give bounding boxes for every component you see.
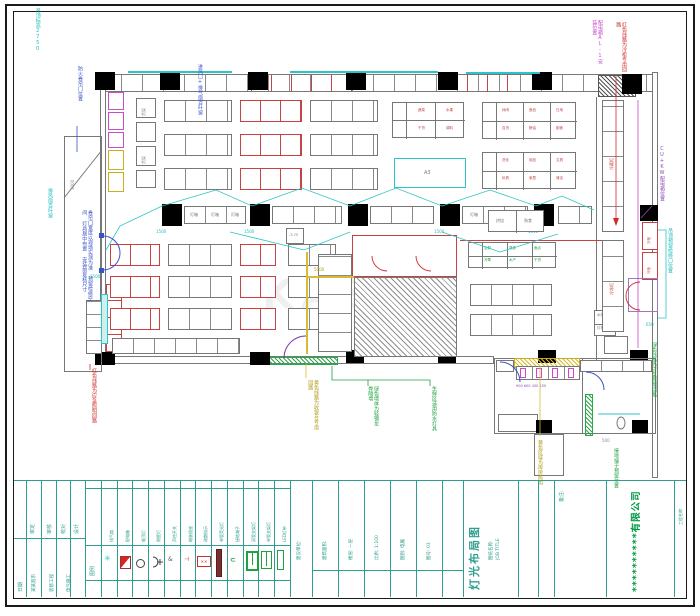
zone-label: 洗化	[502, 158, 509, 163]
legend-name: 吸顶灯	[141, 530, 147, 542]
single-bracket-lamp-symbol-icon	[261, 551, 272, 569]
rack-label-box	[136, 170, 156, 188]
cold-cabinet-label: 冷柜	[647, 237, 652, 244]
rack-label: 货架	[141, 156, 147, 164]
shelf-row	[168, 276, 232, 298]
column	[95, 72, 115, 90]
yellow-wall-line	[306, 276, 354, 278]
lightbox-strip	[558, 206, 592, 224]
shelf-row	[310, 134, 378, 156]
legend-name: 单管支架灯	[266, 522, 272, 542]
tb-field: 图别: 电施	[400, 539, 406, 560]
tb-field: 图号: 03	[426, 542, 432, 560]
green-hatched-wall-vertical	[585, 394, 593, 436]
column	[438, 72, 458, 90]
cold-cabinet-label: 冷柜	[647, 267, 652, 274]
titleblock-line	[180, 480, 181, 597]
titleblock-line	[312, 570, 463, 571]
titleblock-line	[258, 480, 259, 597]
annex-shelf-stack	[86, 300, 102, 354]
dim-1500: 1500	[156, 229, 166, 234]
titleblock-line	[148, 480, 149, 597]
hatched-void-area	[354, 277, 457, 357]
zone-label: 生鲜	[484, 246, 491, 251]
tb-check-label: 审核	[46, 524, 53, 534]
legend-name: 配电箱	[125, 530, 131, 542]
titleblock-line	[85, 545, 290, 546]
red-wall-line	[460, 240, 620, 241]
dim-1500: 1500	[244, 229, 254, 234]
tb-project-label: 工程名称:	[678, 508, 684, 525]
titleblock-line	[132, 480, 133, 597]
shelf-row	[168, 244, 232, 266]
titleblock-border	[14, 480, 686, 481]
ground-symbol-icon: ⊂	[230, 556, 236, 564]
lightbox-strip	[272, 206, 342, 224]
lightbox-strip	[370, 206, 434, 224]
shelf-row-red	[110, 308, 160, 330]
column	[346, 72, 366, 90]
annotation-site-notes: 卷帘门宽度以现场实测为准 预留检修空间 灯具居中布置 安装前复核尺寸	[54, 210, 92, 304]
legend-name: 声控开关	[172, 526, 178, 542]
annotation-partition-wall: 绿色墙体为轻钢龙骨隔墙	[358, 386, 378, 430]
legend-name: LED灯带	[282, 526, 288, 542]
zone-label: 面点	[534, 246, 541, 251]
zone-label: 食品	[529, 108, 536, 113]
cold-cabinet	[642, 252, 658, 280]
dim-500: 500	[602, 438, 610, 443]
shelf-row-red	[240, 134, 302, 156]
column	[640, 205, 658, 221]
titleblock-line	[243, 480, 244, 597]
zone-label: 日用	[556, 108, 563, 113]
drawing-title-label: 图纸名称:	[488, 540, 494, 560]
magenta-fixture	[536, 368, 542, 378]
shelf-row-red	[240, 308, 276, 330]
ceiling-lamp-symbol-icon	[136, 559, 145, 568]
shelf-row-red	[110, 276, 160, 298]
column	[536, 420, 552, 433]
cyan-wall-strip	[101, 294, 108, 344]
annotation-cashier-circuit: 黄色线路为收银台专用回路	[292, 380, 318, 432]
rack-label: 货架	[141, 108, 147, 116]
led-strip-symbol-icon	[277, 550, 284, 570]
exit-sign-symbol-icon: ✕✕	[197, 556, 211, 567]
magenta-fixture-box	[108, 132, 124, 148]
dim-650: 650	[646, 322, 654, 327]
annotation-exhaust-louver: 排风扇百叶窗	[38, 188, 52, 246]
column	[250, 352, 270, 365]
shelf-row-red	[110, 244, 160, 266]
titleblock-line	[606, 480, 607, 597]
drawing-title: 灯光布局图	[466, 525, 482, 590]
dim-1500: 1500	[434, 229, 444, 234]
distribution-box	[348, 204, 368, 226]
dim-3000: 3000	[70, 180, 75, 190]
column	[160, 72, 180, 90]
legend-name: 侧壁灯	[156, 530, 162, 542]
tb-proof-label: 校对	[60, 524, 67, 534]
distribution-box	[440, 204, 460, 226]
zone-label: 调料	[446, 126, 453, 131]
dim-row: 900 600 450 150	[516, 384, 546, 388]
titleblock-line	[364, 480, 365, 597]
zone-label: 干货	[534, 258, 541, 263]
tb-project-text: 装修工程	[49, 574, 55, 592]
titleblock-line	[463, 480, 464, 597]
shelf-row	[310, 100, 378, 122]
zone-label: 清洁	[556, 176, 563, 181]
company-name: **********有限公司	[628, 490, 642, 592]
titleblock-line	[274, 480, 275, 597]
column	[248, 72, 268, 90]
red-room-band	[352, 235, 457, 277]
switch-symbol-icon: &	[168, 556, 173, 563]
distribution-box-symbol-icon	[120, 556, 131, 569]
zone-label: 熟食	[509, 246, 516, 251]
titleblock-line	[338, 480, 339, 597]
titleblock-line	[85, 580, 290, 581]
legend-name: 接地端子	[235, 526, 241, 542]
titleblock-line	[518, 480, 519, 597]
column	[532, 72, 552, 90]
room-label: 熟食	[524, 218, 532, 224]
annex-room-box	[498, 414, 538, 432]
shelf-row	[168, 308, 232, 330]
cold-counter-label: 冷冻柜	[609, 283, 615, 295]
zone-label: 水果	[446, 108, 453, 113]
lightbox-label: 灯箱	[470, 212, 478, 218]
tb-field: 建筑面积:	[322, 540, 328, 560]
titleblock-line	[211, 480, 212, 597]
shelf-row	[310, 168, 378, 190]
lightbox-label: 灯箱	[211, 212, 219, 218]
fan-symbol-icon: ✳	[104, 554, 111, 563]
zone-label: 粮油	[529, 126, 536, 131]
double-bracket-lamp-symbol-icon	[246, 551, 259, 571]
magenta-fixture-box	[108, 112, 124, 130]
ac-zone-label: A3	[424, 170, 431, 176]
annotation-waterproof-lamp: 生鲜区选用防水灯具	[422, 386, 436, 432]
zone-label: 文具	[556, 158, 563, 163]
tb-design-label: 设计	[73, 524, 80, 534]
annotation-fire-shutter: 防火卷帘门位置	[72, 66, 82, 124]
titleblock-line	[442, 480, 443, 597]
corridor-box	[604, 336, 628, 354]
yellow-wall-line	[306, 252, 308, 354]
yellow-fixture-box	[108, 172, 124, 192]
annotation-ceiling-height: 吊顶标高2750	[34, 8, 40, 56]
titleblock-line	[290, 480, 291, 597]
legend-title: 图例	[89, 566, 96, 576]
magenta-fixture	[568, 368, 574, 378]
zone-label: 水产	[509, 258, 516, 263]
shelf-row-red	[240, 168, 302, 190]
green-hatched-wall-segment	[258, 357, 338, 365]
shelf-row-red	[240, 100, 302, 122]
drawing-sheet: KASO 3000 货架 货架	[0, 0, 700, 616]
annotation-cu-kw-box: CU+KW配电箱位置	[648, 146, 664, 204]
zone-label: 玩具	[502, 176, 509, 181]
tb-field: 楼层: 一层	[348, 539, 354, 560]
annex-top-cell	[496, 360, 514, 372]
magenta-fixture-box	[108, 92, 124, 110]
shelf-row	[470, 284, 552, 306]
titleblock-line	[164, 480, 165, 597]
shelf-row	[164, 168, 232, 190]
shelf-row	[112, 338, 240, 354]
tb-note-label: 备注:	[558, 490, 565, 502]
shelf-row-red	[240, 244, 276, 266]
titleblock-line	[14, 538, 85, 539]
titleblock-line	[390, 480, 391, 597]
column	[622, 74, 642, 94]
zone-label: 副食	[556, 126, 563, 131]
zone-label: 蔬菜	[418, 108, 425, 113]
titleblock-line	[85, 488, 290, 489]
legend-name: 暗装插座	[188, 526, 194, 542]
titleblock-line	[538, 480, 539, 597]
yellow-fixture-box	[108, 150, 124, 170]
drawing-title-label-en: JOB TITLE	[496, 538, 501, 560]
annotation-green-circuit: 绿色线路为应急照明回路	[642, 342, 656, 422]
lightbox-label: 灯箱	[231, 212, 239, 218]
fluorescent-tube-symbol-icon	[216, 549, 222, 577]
titleblock-line	[101, 480, 102, 597]
legend-name: 双管支架灯	[251, 522, 257, 542]
legend-name: 疏散指示	[203, 526, 209, 542]
distribution-box	[162, 204, 182, 226]
zone-label: 用品	[529, 158, 536, 163]
top-perimeter-shelving	[100, 74, 656, 92]
titleblock-line	[312, 480, 313, 597]
magenta-fixture	[552, 368, 558, 378]
door-frame	[628, 278, 658, 312]
titleblock-line	[674, 480, 675, 597]
titleblock-line	[227, 480, 228, 597]
tb-field: 建设单位:	[296, 540, 302, 560]
room-label: 烘焙	[496, 218, 504, 224]
annotation-red-circuit: 红色线路为冷柜专用回路	[610, 22, 626, 74]
tb-date-label: 日期	[17, 582, 24, 592]
dim-5000: 5000	[314, 267, 324, 272]
tb-field: 比例: 1:100	[374, 535, 380, 560]
legend-name: 排气扇	[109, 530, 115, 542]
zone-label: 干货	[418, 126, 425, 131]
wall-lamp-symbol-icon	[150, 556, 164, 568]
tb-project-text: 某某超市	[31, 574, 37, 592]
distribution-box	[250, 204, 270, 226]
zone-label: 休闲	[502, 108, 509, 113]
titleblock-line	[416, 480, 417, 597]
cold-cabinet	[642, 222, 658, 250]
annotation-access-panel: 吊顶预留检修口位置	[662, 228, 672, 320]
annotation-emergency-circuit: 红色线路为应急照明回路	[80, 368, 96, 430]
annotation-distribution-box: 配电箱AL-1安装位置	[586, 20, 602, 64]
socket-symbol-icon: ⊣	[184, 556, 189, 563]
zone-label: 家居	[529, 176, 536, 181]
rack-label-box	[136, 122, 156, 142]
cold-counter-label: 冷藏柜	[609, 158, 615, 170]
tb-project-text: 电气施工	[66, 574, 72, 592]
legend-name: 单管荧光灯	[219, 522, 225, 542]
titleblock-line	[554, 480, 555, 597]
titleblock-line	[117, 480, 118, 597]
lightbox-label: 灯箱	[190, 212, 198, 218]
titleblock-line	[195, 480, 196, 597]
magenta-fixture	[520, 368, 526, 378]
zone-grid-table	[392, 102, 464, 138]
shelf-row-red	[240, 276, 276, 298]
zone-label: 百货	[502, 126, 509, 131]
shelf-row	[470, 314, 552, 336]
zone-label: 冷荤	[484, 258, 491, 263]
annotation-air-inlet: 进风口+排气扇百叶窗	[190, 64, 202, 164]
level-label: -3.75	[289, 233, 298, 237]
tb-approve-label: 审定	[29, 524, 36, 534]
